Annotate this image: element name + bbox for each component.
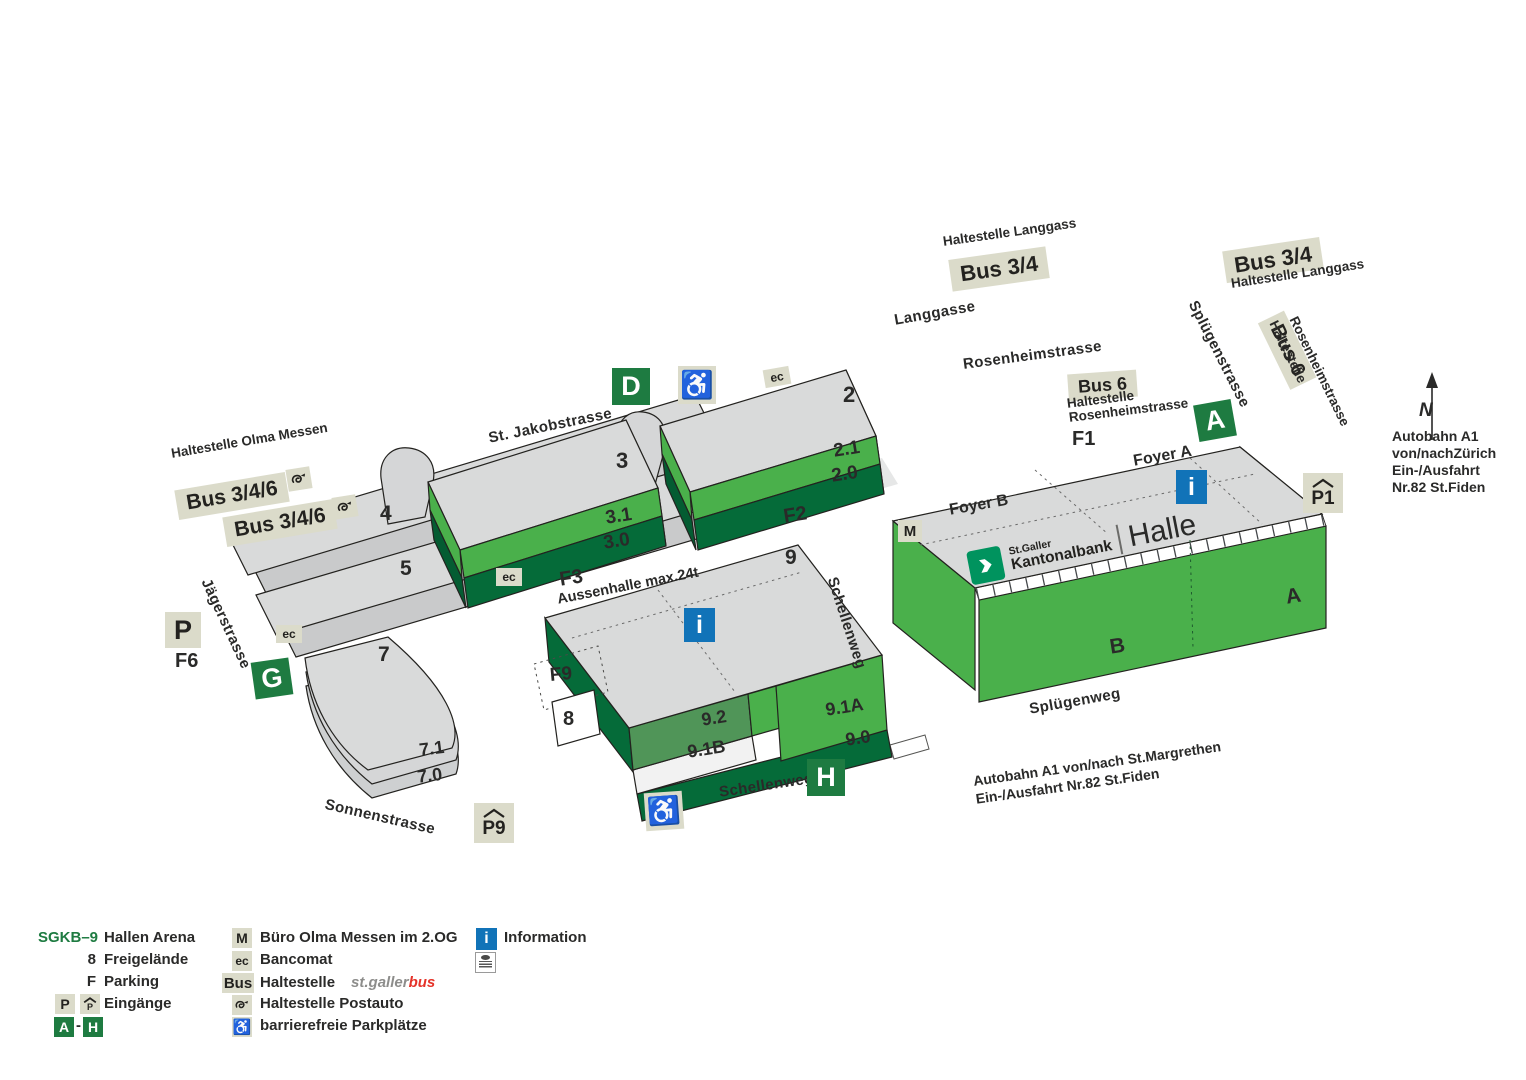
area-f9: F9	[549, 663, 573, 687]
legend-bus-badge: Bus	[222, 973, 254, 993]
legend-8: 8	[38, 951, 96, 968]
hall-3: 3	[616, 448, 628, 474]
legend-postauto-icon	[232, 995, 252, 1015]
parking-p-badge: P	[165, 612, 201, 648]
legend-freigelaende: Freigelände	[104, 951, 188, 968]
logo-divider	[1116, 524, 1124, 554]
legend-ec-badge: ec	[232, 951, 252, 971]
parking-p1-badge: P1	[1303, 473, 1343, 513]
hall-3-0: 3.0	[602, 529, 632, 555]
building-halle	[893, 447, 1326, 702]
hall-9-0: 9.0	[844, 726, 872, 751]
hall-5: 5	[400, 557, 412, 581]
area-f2: F2	[782, 502, 809, 528]
legend-sgkb9: SGKB–9	[38, 929, 96, 946]
legend-covered-p-badge: P	[80, 994, 100, 1014]
hall-9: 9	[785, 546, 797, 570]
legend-haltestelle-bus: Haltestellest.gallerbus	[260, 974, 435, 991]
entrance-h-badge: H	[807, 759, 845, 796]
information-icon-halle: i	[1176, 470, 1207, 504]
sgkb-logo-icon	[966, 546, 1006, 586]
ec-icon-hall5: ec	[276, 625, 302, 643]
hall-2-0: 2.0	[830, 462, 860, 488]
legend-m-badge: M	[232, 928, 252, 948]
legend-information: Information	[504, 929, 587, 946]
area-f1: F1	[1072, 428, 1095, 451]
stgallerbus-brand: st.gallerbus	[351, 974, 435, 991]
legend-barrierefrei: barrierefreie Parkplätze	[260, 1017, 427, 1034]
olma-site-map: Langgasse Rosenheimstrasse Splügenstrass…	[0, 0, 1526, 1080]
postauto-icon-1	[285, 466, 312, 491]
legend-range-dash: -	[76, 1017, 81, 1034]
hall-2-1: 2.1	[832, 437, 862, 463]
wheelchair-icon-north: ♿	[678, 366, 716, 404]
legend-postauto: Haltestelle Postauto	[260, 995, 403, 1012]
parking-p9-badge: P9	[474, 803, 514, 843]
autobahn-zuerich-note: Autobahn A1 von/nachZürich Ein-/Ausfahrt…	[1392, 428, 1496, 496]
postauto-icon-2	[331, 494, 358, 519]
legend-bancomat: Bancomat	[260, 951, 333, 968]
area-f6: F6	[175, 650, 198, 673]
olma-office-m-badge: M	[898, 520, 922, 542]
legend-h-badge: H	[83, 1017, 103, 1037]
legend-wheelchair-icon: ♿	[232, 1017, 252, 1037]
wheelchair-icon-south: ♿	[644, 791, 685, 832]
hall-2: 2	[843, 382, 855, 408]
entrance-g-badge: G	[251, 658, 294, 700]
building-8-pad	[552, 690, 600, 746]
hall-7-1: 7.1	[418, 737, 445, 761]
legend-hallen-arena: Hallen Arena	[104, 929, 195, 946]
hall-7-0: 7.0	[416, 764, 443, 788]
ec-icon-hall3: ec	[496, 568, 522, 586]
hall-9-2: 9.2	[700, 706, 728, 731]
hall-7: 7	[378, 643, 390, 667]
entrance-d-badge: D	[612, 368, 650, 405]
information-icon-hall9: i	[684, 608, 715, 642]
legend-emblem-icon	[475, 952, 496, 973]
hall-3-1: 3.1	[604, 504, 634, 530]
legend-eingaenge: Eingänge	[104, 995, 172, 1012]
legend-p-badge: P	[55, 994, 75, 1014]
legend-a-badge: A	[54, 1017, 74, 1037]
legend-parking: Parking	[104, 973, 159, 990]
legend-buero: Büro Olma Messen im 2.OG	[260, 929, 458, 946]
compass-n-label: N	[1419, 400, 1433, 422]
hall-4: 4	[380, 502, 392, 526]
legend-f: F	[38, 973, 96, 990]
legend: SGKB–9 Hallen Arena 8 Freigelände F Park…	[38, 925, 698, 1055]
entrance-a-badge: A	[1193, 399, 1237, 442]
legend-information-icon: i	[476, 928, 497, 950]
hall-8: 8	[563, 708, 574, 731]
